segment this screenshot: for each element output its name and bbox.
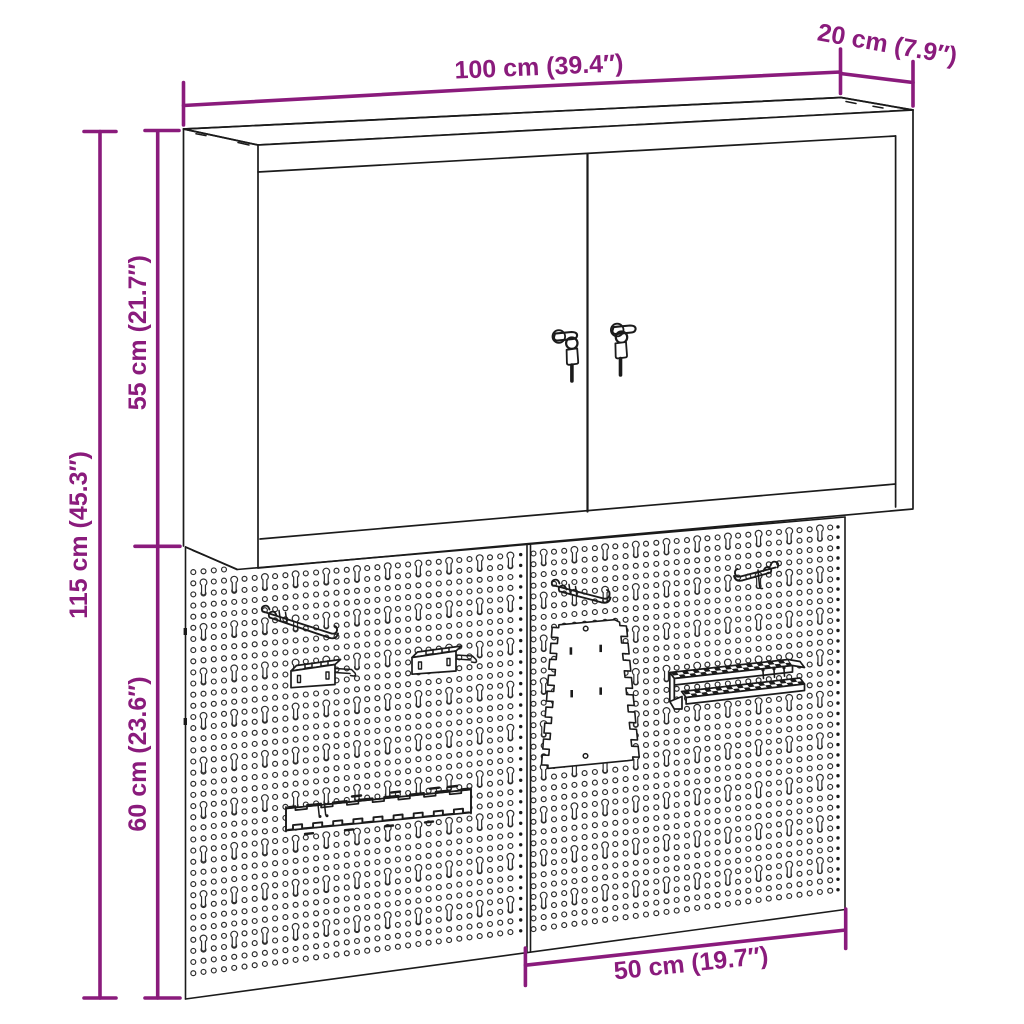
svg-text:115 cm (45.3″): 115 cm (45.3″) — [65, 451, 93, 619]
svg-text:55 cm (21.7″): 55 cm (21.7″) — [124, 255, 152, 410]
svg-text:60 cm (23.6″): 60 cm (23.6″) — [124, 676, 152, 831]
